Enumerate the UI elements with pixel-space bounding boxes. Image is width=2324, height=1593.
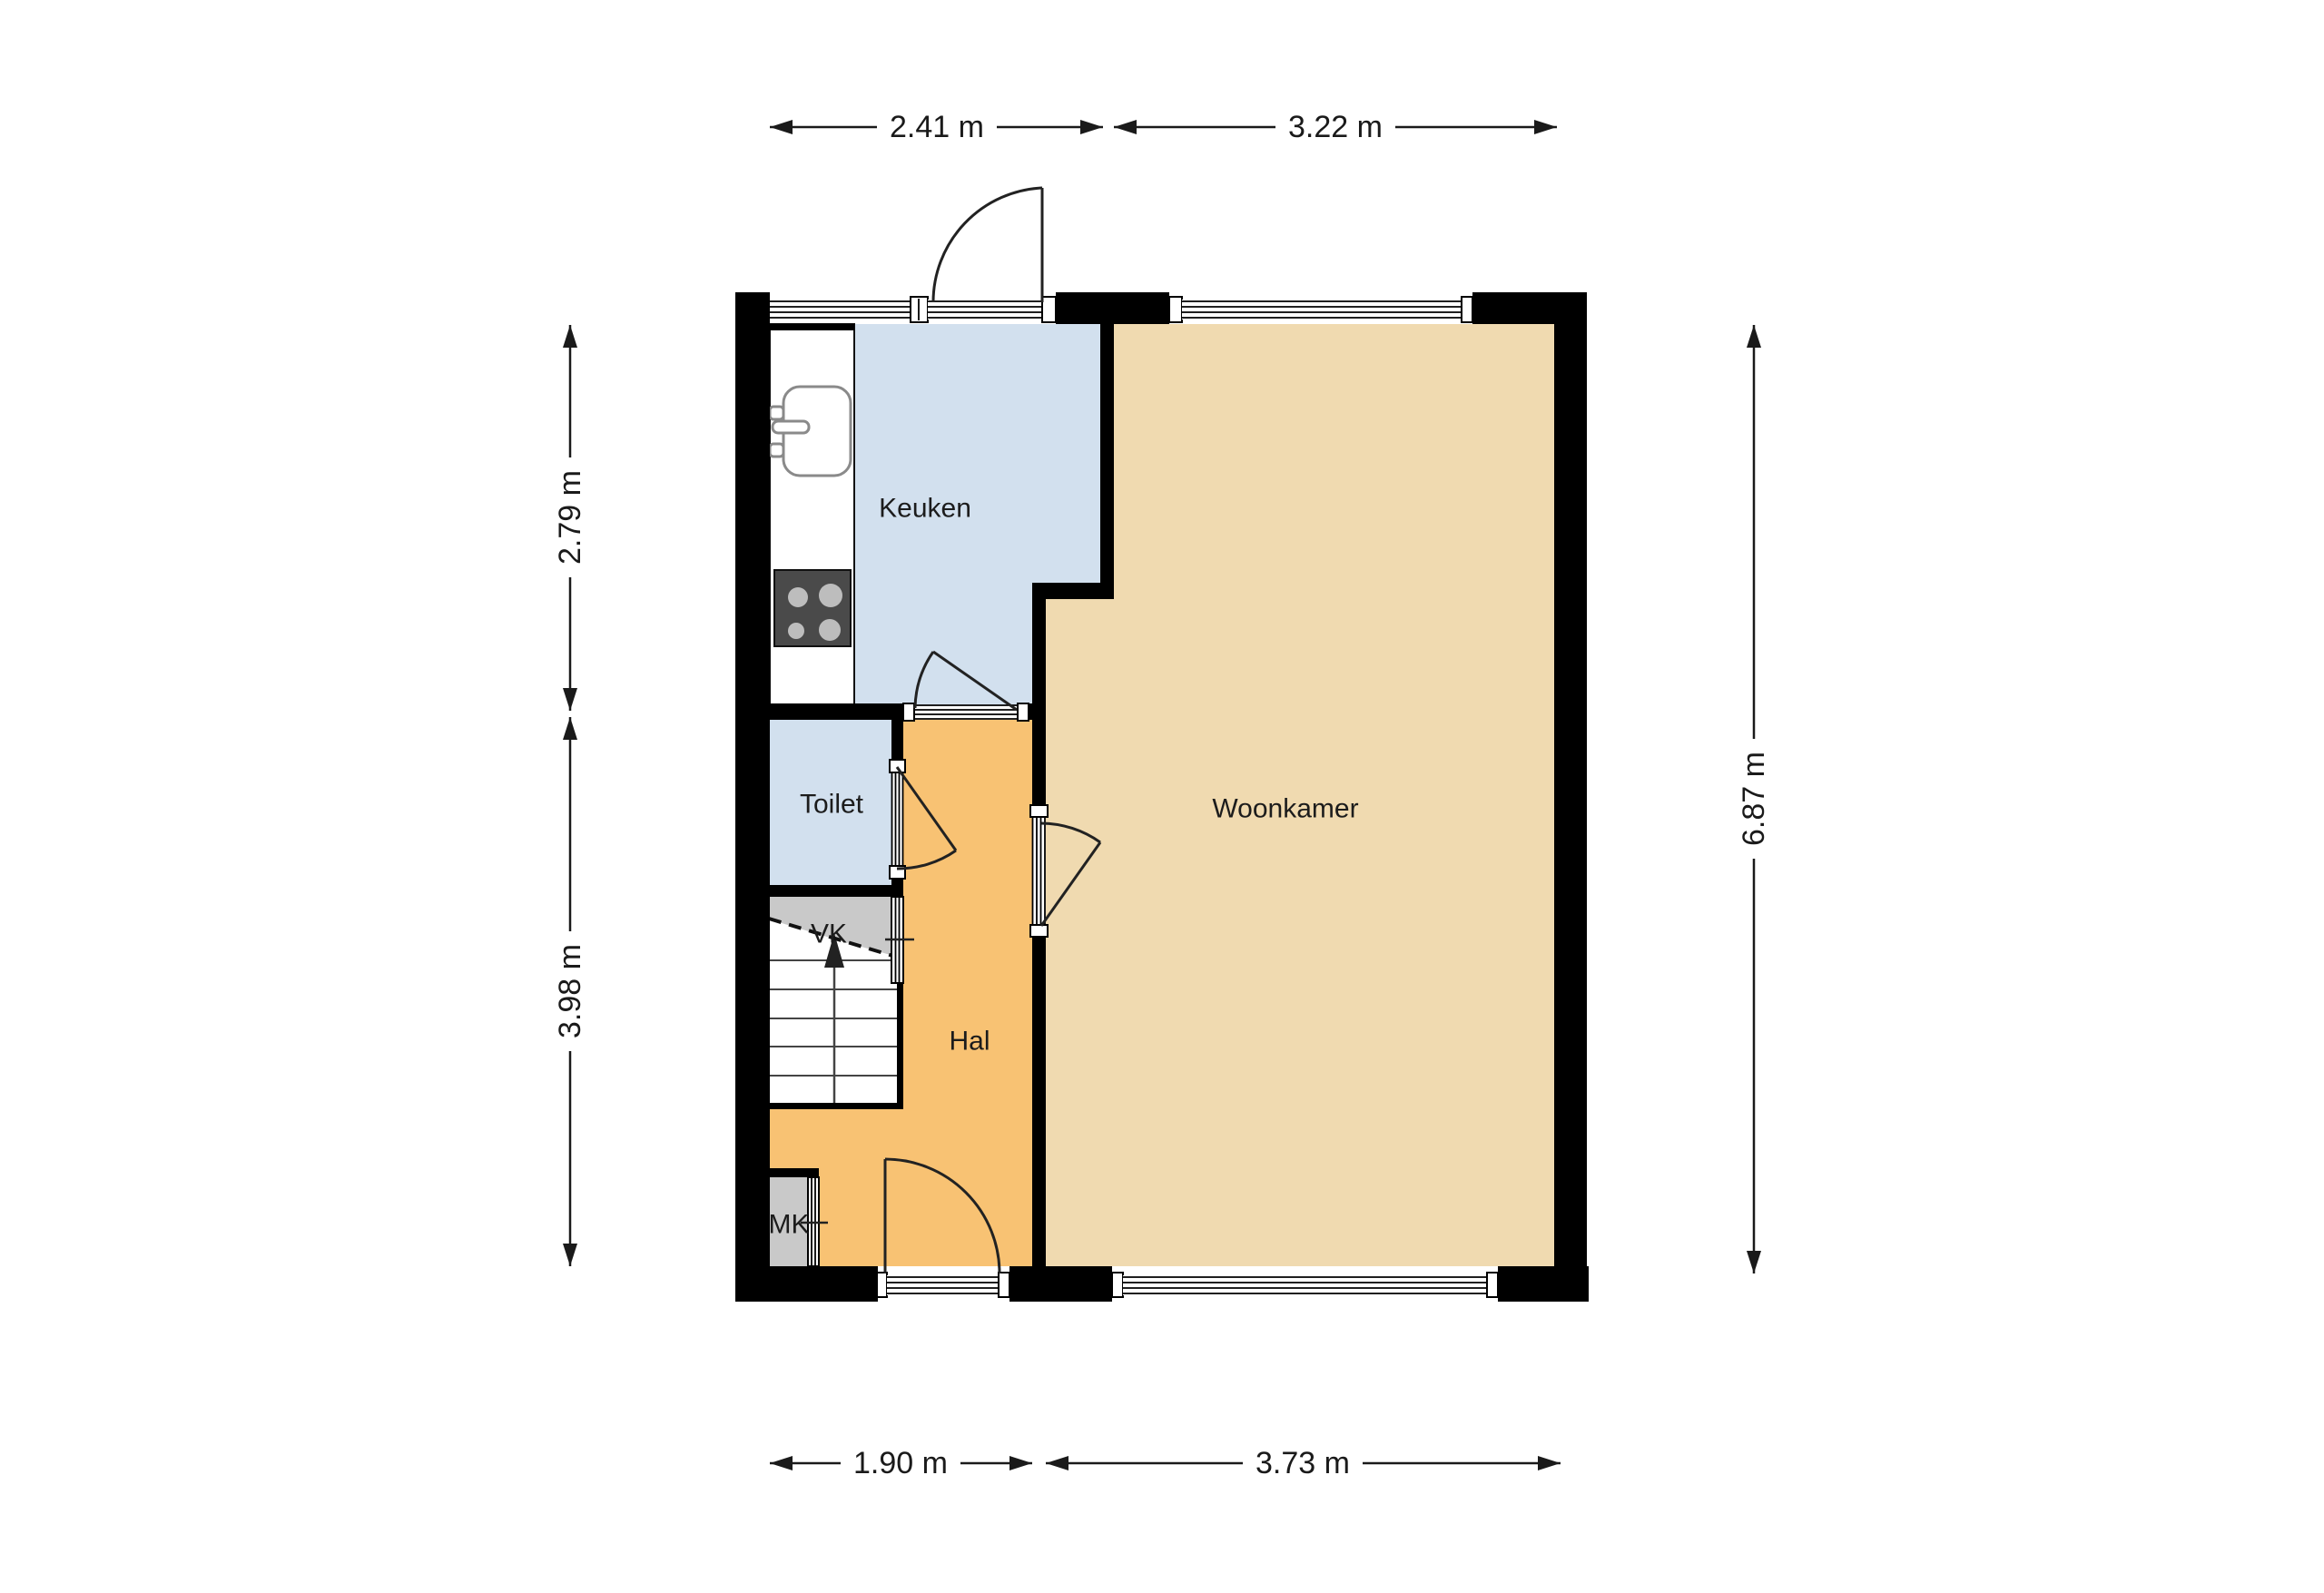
floorplan-page: Keuken Toilet Hal Woonkamer VK MK 2.41 m… (0, 0, 2324, 1593)
room-label-vk: VK (811, 919, 847, 949)
window-bottom-cap-right (1487, 1273, 1498, 1297)
stove-burner (819, 584, 842, 607)
dimension-label-right: 6.87 m (1737, 752, 1771, 846)
wall-bottom-right (1498, 1266, 1589, 1302)
wall-bottom-left (735, 1266, 878, 1302)
wall-left (735, 292, 770, 1302)
room-label-mk: MK (769, 1210, 810, 1240)
stove-burner (788, 587, 808, 607)
wall-hal-woonkamer-lower (1032, 935, 1046, 1266)
keuken-door-sill (903, 704, 1029, 720)
faucet-handle-bottom (770, 444, 783, 457)
woonkamer-door-jamb-top (1030, 805, 1048, 817)
dimension-label-top-1: 2.41 m (890, 110, 984, 144)
dimension-label-top-2: 3.22 m (1288, 110, 1383, 144)
frontdoor-threshold (887, 1275, 999, 1295)
stove-burner (788, 623, 804, 639)
wall-bottom-mid (1009, 1266, 1112, 1302)
faucet-spout (773, 421, 809, 433)
faucet-handle-top (770, 407, 783, 419)
kitchen-counter-edge (770, 324, 854, 330)
backdoor-jamb (1042, 297, 1056, 322)
room-label-woonkamer: Woonkamer (1212, 794, 1358, 824)
dimension-label-bottom-1: 1.90 m (853, 1446, 948, 1480)
wall-top-pillar (1056, 292, 1169, 324)
wall-keuken-woonkamer-step (1032, 583, 1114, 599)
window-bottom-cap-left (1112, 1273, 1123, 1297)
frontdoor-jamb-left (877, 1273, 887, 1297)
keuken-door-jamb-left (903, 703, 914, 721)
window-top-right-cap-right (1462, 297, 1472, 322)
wall-right (1554, 292, 1587, 1302)
window-top-right-cap-left (1169, 297, 1182, 322)
wall-keuken-hal-right (1029, 703, 1046, 720)
window-top-right (1182, 300, 1462, 320)
dimension-label-bottom-2: 3.73 m (1256, 1446, 1350, 1480)
frontdoor-jamb-right (999, 1273, 1009, 1297)
dimension-label-left-1: 2.79 m (553, 470, 587, 565)
toilet-door-sill (891, 772, 903, 867)
wall-mk-top (770, 1168, 819, 1177)
woonkamer-door-sill (1032, 815, 1046, 926)
room-label-keuken: Keuken (879, 494, 971, 524)
room-label-hal: Hal (949, 1027, 990, 1057)
stair-right-edge (897, 980, 903, 1109)
stove-burner (819, 619, 841, 641)
kitchen-counter (770, 324, 854, 705)
wall-toilet-bottom (770, 885, 903, 897)
window-top-left (770, 300, 911, 320)
wall-hal-woonkamer-upper (1032, 599, 1046, 806)
toilet-door-jamb-top (890, 760, 905, 772)
floorplan-drawing: Keuken Toilet Hal Woonkamer VK MK 2.41 m… (0, 0, 2324, 1593)
woonkamer-door-jamb-bottom (1030, 925, 1048, 937)
dimension-label-left-2: 3.98 m (553, 944, 587, 1038)
window-bottom (1123, 1275, 1487, 1295)
wall-keuken-hal-left (770, 703, 903, 720)
backdoor-threshold (928, 300, 1042, 320)
room-label-toilet: Toilet (800, 790, 864, 820)
backdoor-swing (933, 188, 1042, 302)
keuken-door-jamb-right (1018, 703, 1029, 721)
stair-bottom-edge (770, 1103, 903, 1109)
wall-keuken-woonkamer (1100, 324, 1114, 583)
